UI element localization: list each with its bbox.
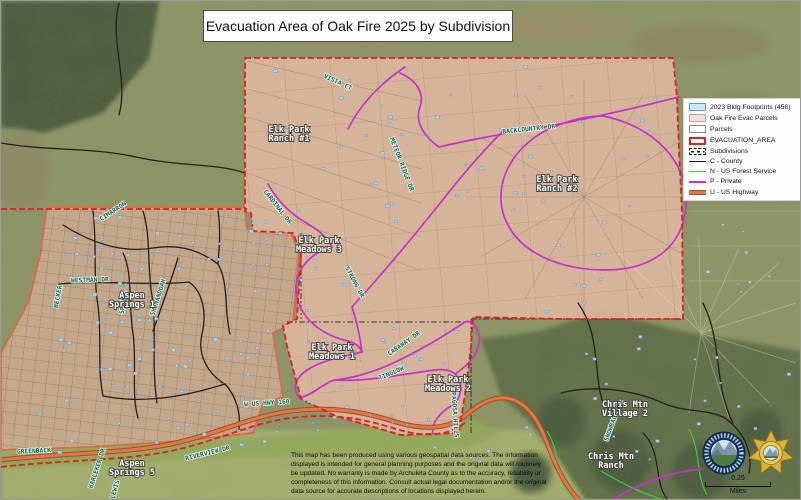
- legend-label: Subdivisions: [710, 148, 748, 155]
- legend-label: Oak Fire Evac Parcels: [710, 115, 778, 122]
- scale-units: Miles: [703, 488, 773, 495]
- bldg-footprints-swatch-icon: [689, 103, 706, 111]
- legend-label: Parcels: [710, 126, 733, 133]
- subdivision-label: Chris MtnVillage 2: [602, 399, 648, 419]
- map-canvas[interactable]: GREENBACK W US HWY 160 WESTMAN DR SHENAN…: [1, 1, 801, 500]
- legend-item-private-road: P - Private: [689, 178, 797, 185]
- legend-item-county-road: C - County: [689, 158, 797, 165]
- legend-item-evac-parcels: Oak Fire Evac Parcels: [689, 114, 797, 122]
- legend-label: EVACUATION_AREA: [710, 137, 775, 144]
- legend: 2023 Bldg Footprints (456) Oak Fire Evac…: [683, 98, 801, 201]
- forest-service-line-icon: [689, 171, 706, 172]
- county-seal-logo: [703, 432, 745, 474]
- legend-item-subdivisions: Subdivisions: [689, 148, 797, 155]
- legend-item-parcels: Parcels: [689, 125, 797, 133]
- scale-bar: 0.25 Miles: [703, 475, 773, 495]
- legend-item-us-highway: U - US Highway: [689, 189, 797, 196]
- county-road-line-icon: [689, 161, 706, 162]
- map-stage: GREENBACK W US HWY 160 WESTMAN DR SHENAN…: [0, 0, 801, 500]
- evacuation-area-swatch-icon: [689, 137, 706, 145]
- parcels-swatch-icon: [689, 125, 706, 133]
- legend-item-bldg-footprints: 2023 Bldg Footprints (456): [689, 103, 797, 111]
- road-label: WESTMAN DR: [71, 276, 109, 284]
- subdivision-label: Elk ParkMeadows 1: [309, 343, 355, 362]
- legend-label: C - County: [710, 158, 742, 165]
- disclaimer-text: This map has been produced using various…: [291, 452, 548, 497]
- subdivision-label: Elk ParkRanch #2: [537, 175, 578, 194]
- legend-label: 2023 Bldg Footprints (456): [710, 104, 790, 111]
- subdivisions-swatch-icon: [689, 148, 706, 155]
- map-title: Evacuation Area of Oak Fire 2025 by Subd…: [203, 10, 513, 42]
- private-road-line-icon: [689, 181, 706, 183]
- scale-bar-line: [705, 482, 771, 487]
- evac-parcels-swatch-icon: [689, 114, 706, 122]
- legend-item-evacuation-area: EVACUATION_AREA: [689, 137, 797, 145]
- legend-label: U - US Highway: [710, 189, 758, 196]
- subdivision-label: Elk ParkRanch #1: [269, 125, 310, 144]
- subdivision-label: Elk ParkMeadows 2: [425, 375, 471, 394]
- legend-item-forest-service-road: N - US Forest Service: [689, 168, 797, 175]
- subdivision-label: Elk ParkMeadows 3: [296, 236, 342, 255]
- us-highway-line-icon: [689, 190, 706, 195]
- legend-label: P - Private: [710, 178, 742, 185]
- legend-label: N - US Forest Service: [710, 168, 776, 175]
- scale-distance: 0.25: [703, 475, 773, 482]
